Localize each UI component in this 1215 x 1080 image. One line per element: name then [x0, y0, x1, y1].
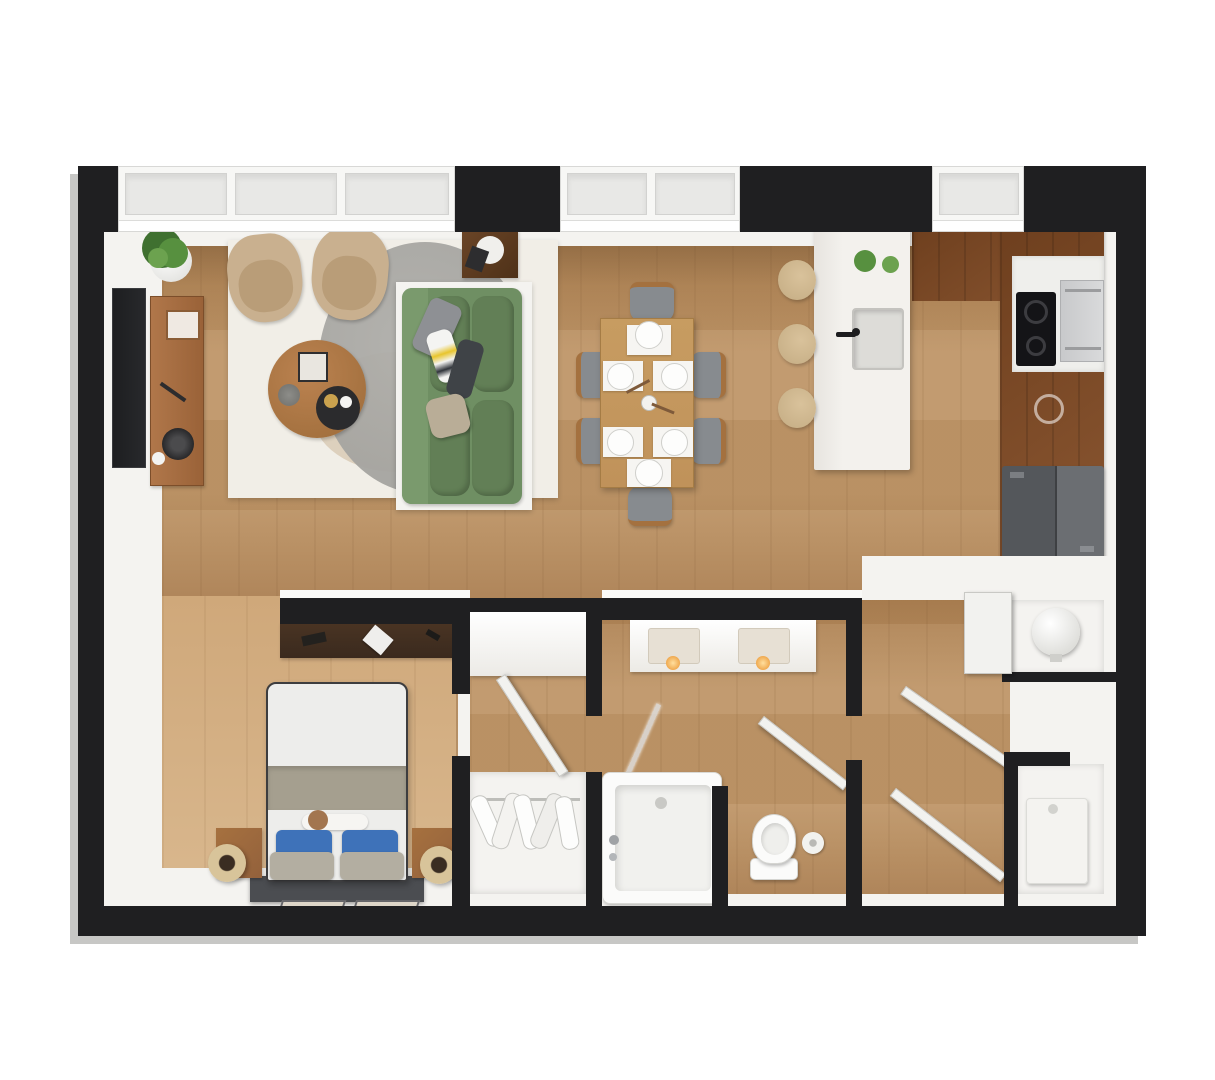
plant-foliage-icon [148, 248, 168, 268]
island-plant-icon [882, 256, 899, 273]
water-heater-closet [1010, 600, 1104, 674]
tub-drain-icon [655, 797, 667, 809]
plate [607, 363, 634, 390]
washer-knob-icon [1048, 804, 1058, 814]
sofa-cushion [472, 400, 514, 496]
window [560, 166, 740, 232]
plate [607, 429, 634, 456]
wall-tv [112, 288, 146, 468]
oven-seam [1065, 347, 1101, 350]
bar-stool [778, 260, 816, 300]
console-tray [166, 310, 200, 340]
speaker-icon [162, 428, 194, 460]
wall-segment [452, 756, 470, 906]
wall-outer-top [455, 166, 560, 232]
wall-segment [1002, 672, 1116, 682]
bar-stool [778, 324, 816, 364]
wall-bedroom-living [280, 598, 470, 624]
wall-outer-bottom [78, 906, 1146, 936]
tub-faucet-icon [609, 835, 619, 845]
window-pane [567, 173, 647, 215]
dining-chair [692, 352, 726, 398]
coffee-table-tray [316, 386, 360, 430]
window-sill [561, 220, 739, 231]
dining-chair [628, 486, 672, 526]
wall-segment [586, 772, 602, 906]
wall-bathroom-top [602, 598, 846, 620]
wall-segment [586, 598, 602, 716]
plate [661, 363, 688, 390]
burner-icon [1026, 336, 1046, 356]
desk-item [425, 629, 440, 641]
bed-accent-pillow [308, 810, 328, 830]
window-sill [933, 220, 1023, 231]
armchair-seat [320, 254, 379, 313]
wall-segment [1004, 752, 1070, 766]
wall-segment [846, 598, 862, 716]
pillow-gray [270, 852, 334, 880]
island-sink [852, 308, 904, 370]
island-plant-icon [854, 250, 876, 272]
refrigerator [1002, 466, 1104, 558]
hanging-clothes [553, 795, 580, 851]
fridge-hinge [1010, 472, 1024, 478]
fridge-hinge [1080, 546, 1094, 552]
burner-icon [1024, 300, 1048, 324]
wall-outer-right [1116, 166, 1146, 936]
wall-outer-top [740, 166, 932, 232]
dining-chair [630, 282, 674, 322]
wall-outer-top [1024, 166, 1146, 232]
window [932, 166, 1024, 232]
table-book [298, 352, 328, 382]
kitchen-island [814, 218, 910, 470]
nightstand-lamp [208, 844, 246, 882]
table-vase [278, 384, 300, 406]
paper-roll-icon [802, 832, 824, 854]
cooktop [1016, 292, 1056, 366]
tray-bowl [324, 394, 338, 408]
window [118, 166, 455, 232]
bed-blanket-band [268, 766, 406, 810]
wall-outer-left [78, 166, 104, 936]
dining-table [600, 318, 694, 488]
toilet-bowl [761, 823, 789, 855]
closet-wall [470, 598, 602, 612]
faucet-icon [852, 328, 860, 336]
oven [1060, 280, 1104, 362]
pillow-gray [340, 852, 404, 880]
window-sill [119, 220, 454, 231]
heater-pipe [1050, 654, 1062, 662]
plate [635, 459, 663, 487]
toilet [752, 814, 796, 864]
wall-outer-top [78, 166, 118, 232]
desk-paper [362, 625, 393, 656]
armchair-seat [236, 257, 295, 314]
double-vanity [630, 620, 816, 672]
counter-sink [1034, 394, 1064, 424]
vanity-light-icon [756, 656, 770, 670]
tub-handle-icon [609, 853, 617, 861]
wall-segment [452, 598, 470, 694]
double-bed [266, 682, 408, 882]
plate [661, 429, 688, 456]
bathtub [602, 772, 722, 904]
window-pane [939, 173, 1019, 215]
window-pane [235, 173, 337, 215]
wall-segment [846, 760, 862, 906]
wall-segment [1004, 752, 1018, 906]
desk-item [301, 632, 327, 647]
window-pane [655, 173, 735, 215]
entry-cabinet [470, 612, 588, 676]
centerpiece-branch [651, 403, 674, 415]
bar-stool [778, 388, 816, 428]
window-pane [345, 173, 449, 215]
oven-seam [1065, 289, 1101, 292]
window-pane [125, 173, 227, 215]
console-decor [152, 452, 165, 465]
floor-plan-canvas [0, 0, 1215, 1080]
water-heater [1032, 608, 1080, 656]
open-door [964, 592, 1012, 674]
wall-tub-partition [712, 786, 728, 906]
vanity-light-icon [666, 656, 680, 670]
clothes-closet [470, 772, 586, 894]
tray-cup [340, 396, 352, 408]
laundry-closet [1016, 764, 1104, 894]
dining-chair [692, 418, 726, 464]
plate [635, 321, 663, 349]
bedroom-desk [280, 622, 458, 658]
